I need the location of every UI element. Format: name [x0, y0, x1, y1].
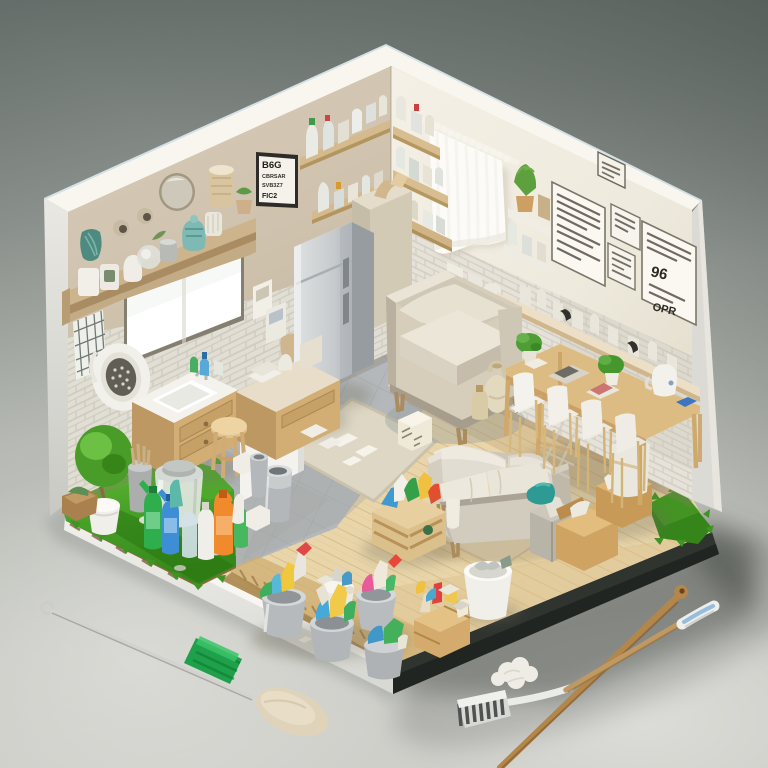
svg-text:FIC2: FIC2	[262, 193, 277, 200]
svg-text:CBRSAR: CBRSAR	[262, 174, 286, 180]
svg-text:SVB3Z7: SVB3Z7	[262, 183, 283, 189]
svg-text:B6G: B6G	[262, 160, 282, 171]
